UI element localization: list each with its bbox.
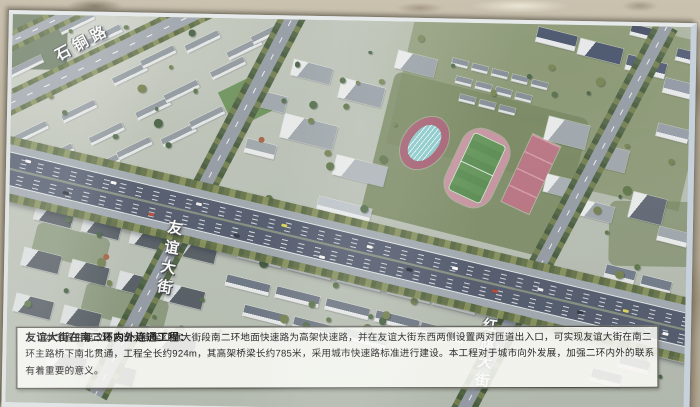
tree — [551, 91, 557, 97]
tree — [324, 150, 331, 157]
tree — [355, 80, 359, 84]
tree — [326, 162, 334, 170]
vehicle — [662, 332, 669, 336]
tree — [107, 280, 112, 285]
tree — [595, 78, 604, 87]
tree — [658, 374, 662, 378]
tree — [63, 288, 68, 293]
tree — [668, 159, 674, 165]
tree — [333, 282, 340, 289]
tree — [490, 89, 497, 96]
billboard-photo: 石铜路 友谊大街 红旗大街 友谊大街在南二环内外连通工程： 本工程主要改造友谊大… — [0, 0, 700, 407]
tree — [154, 119, 163, 128]
tree — [382, 311, 390, 319]
building — [89, 122, 125, 145]
tree — [379, 155, 387, 163]
building — [189, 106, 225, 129]
tree — [618, 195, 622, 199]
building — [116, 137, 152, 160]
tree — [281, 98, 286, 103]
tree — [369, 51, 373, 55]
vehicle — [281, 223, 288, 227]
tree — [605, 231, 609, 235]
info-panel: 友谊大街在南二环内外连通工程： 本工程主要改造友谊大街至红旗大街段南二环地面快速… — [16, 326, 658, 389]
tree — [165, 142, 171, 148]
tree — [527, 74, 532, 79]
tree — [368, 314, 373, 319]
tree — [309, 100, 318, 109]
tree — [586, 91, 590, 95]
tree — [124, 25, 128, 29]
tree — [188, 30, 195, 37]
vehicle — [623, 309, 630, 313]
building — [13, 293, 54, 320]
tree — [379, 79, 385, 85]
tree — [343, 104, 349, 110]
building — [225, 274, 270, 295]
autumn-tree — [258, 137, 264, 143]
tree — [326, 317, 331, 322]
tree — [193, 89, 198, 94]
building — [325, 298, 370, 319]
tree — [69, 29, 73, 33]
building — [210, 57, 246, 80]
vehicle — [406, 268, 413, 272]
vehicle — [25, 159, 32, 163]
tree — [138, 84, 146, 92]
tree — [62, 110, 67, 115]
tree — [280, 314, 289, 323]
project-billboard: 石铜路 友谊大街 红旗大街 友谊大街在南二环内外连通工程： 本工程主要改造友谊大… — [1, 10, 696, 407]
tree — [113, 134, 118, 139]
tree — [308, 118, 314, 124]
autumn-tree — [103, 254, 109, 260]
aerial-rendering: 石铜路 友谊大街 红旗大街 友谊大街在南二环内外连通工程： 本工程主要改造友谊大… — [5, 14, 690, 407]
tree — [97, 232, 102, 237]
info-panel-body: 本工程主要改造友谊大街至红旗大街段南二环地面快速路为高架快速路，并在友谊大街东西… — [25, 330, 657, 380]
tree — [168, 65, 172, 69]
tree — [634, 264, 641, 271]
vehicle — [366, 245, 373, 249]
tree — [65, 216, 72, 223]
tree — [625, 144, 629, 148]
tree — [200, 298, 205, 303]
vehicle — [233, 234, 240, 238]
